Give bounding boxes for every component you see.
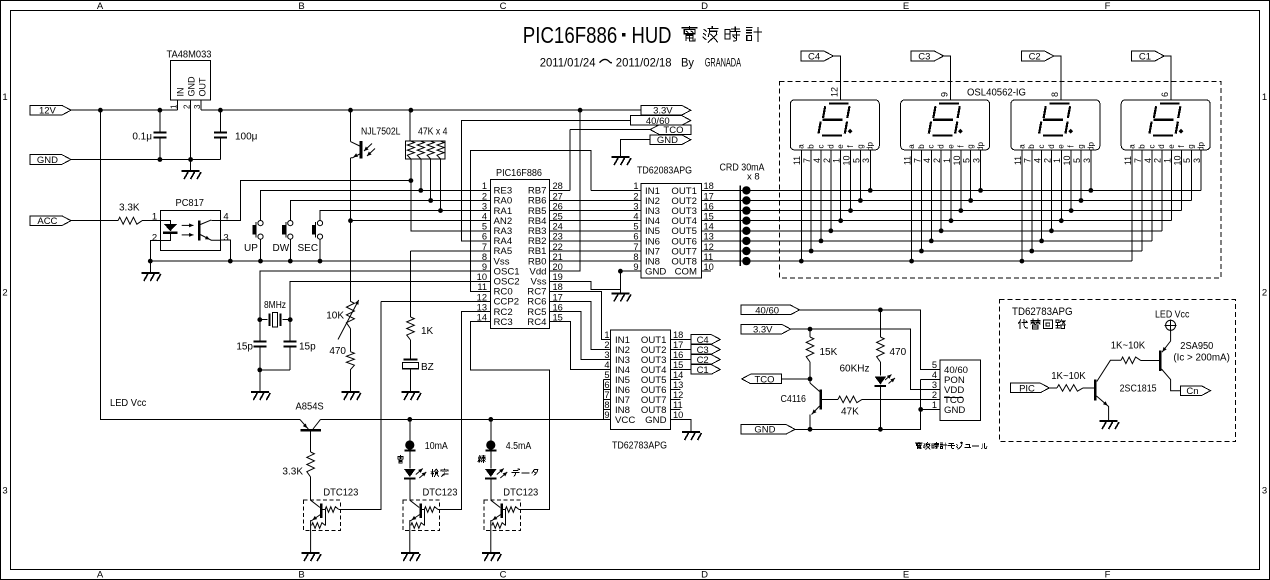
- svg-text:7: 7: [802, 158, 812, 163]
- svg-text:dp: dp: [866, 142, 875, 151]
- svg-text:d: d: [937, 144, 946, 148]
- svg-text:3: 3: [932, 380, 937, 390]
- svg-text:15p: 15p: [236, 342, 253, 353]
- svg-text:18: 18: [673, 330, 683, 340]
- svg-text:13: 13: [477, 302, 487, 312]
- svg-text:e: e: [1057, 144, 1066, 149]
- svg-text:2: 2: [1262, 288, 1267, 299]
- svg-text:dp: dp: [1197, 142, 1206, 151]
- svg-text:C: C: [500, 570, 507, 580]
- svg-text:26: 26: [553, 201, 563, 211]
- svg-text:e: e: [836, 144, 845, 149]
- svg-text:6: 6: [482, 232, 487, 242]
- svg-text:2011/01/24: 2011/01/24: [540, 56, 596, 70]
- svg-text:7: 7: [1133, 158, 1143, 163]
- svg-text:2: 2: [182, 104, 191, 109]
- svg-text:10: 10: [1062, 155, 1072, 165]
- svg-text:C1: C1: [1139, 51, 1151, 62]
- svg-text:DTC123: DTC123: [423, 488, 458, 499]
- svg-text:10: 10: [952, 155, 962, 165]
- svg-text:5: 5: [604, 370, 609, 380]
- svg-text:3: 3: [2, 486, 7, 497]
- svg-text:10: 10: [841, 155, 851, 165]
- svg-text:2: 2: [932, 158, 942, 163]
- svg-text:4: 4: [932, 370, 937, 380]
- svg-text:8: 8: [604, 400, 609, 410]
- svg-text:TCO: TCO: [754, 374, 774, 385]
- svg-text:15K: 15K: [820, 347, 838, 358]
- svg-text:A: A: [97, 570, 104, 580]
- svg-text:BZ: BZ: [421, 362, 434, 373]
- svg-text:6: 6: [1160, 92, 1170, 97]
- svg-text:a: a: [907, 144, 916, 149]
- svg-text:1: 1: [1262, 92, 1267, 103]
- svg-text:DTC123: DTC123: [503, 488, 538, 499]
- svg-text:8: 8: [633, 252, 638, 262]
- svg-text:2SC1815: 2SC1815: [1120, 384, 1157, 395]
- svg-text:b: b: [917, 144, 926, 149]
- svg-text:g: g: [1076, 144, 1085, 148]
- svg-text:E: E: [903, 570, 909, 580]
- svg-text:19: 19: [553, 272, 563, 282]
- svg-text:21: 21: [553, 252, 563, 262]
- svg-text:12: 12: [829, 87, 839, 97]
- svg-text:470: 470: [890, 347, 907, 358]
- svg-text:4: 4: [1033, 158, 1043, 163]
- svg-text:1: 1: [1163, 158, 1173, 163]
- svg-text:5: 5: [1182, 158, 1192, 163]
- svg-text:12V: 12V: [39, 106, 57, 117]
- svg-text:25: 25: [553, 212, 563, 222]
- svg-text:17: 17: [673, 340, 683, 350]
- svg-text:LED Vcc: LED Vcc: [110, 398, 146, 409]
- svg-text:3: 3: [971, 158, 981, 163]
- svg-text:9: 9: [633, 262, 638, 272]
- svg-text:15: 15: [673, 360, 683, 370]
- svg-text:2: 2: [633, 191, 638, 201]
- svg-text:F: F: [1105, 570, 1111, 580]
- svg-text:10K: 10K: [326, 311, 344, 322]
- svg-text:1: 1: [2, 92, 7, 103]
- svg-text:11: 11: [673, 400, 683, 410]
- svg-text:10: 10: [1172, 155, 1182, 165]
- svg-text:12: 12: [673, 390, 683, 400]
- svg-text:C3: C3: [918, 51, 930, 62]
- svg-text:27: 27: [553, 191, 563, 201]
- svg-text:3.3K: 3.3K: [282, 467, 303, 478]
- svg-text:a: a: [1128, 144, 1137, 149]
- svg-text:GND: GND: [37, 155, 58, 166]
- svg-text:0.1μ: 0.1μ: [132, 132, 152, 143]
- svg-text:7: 7: [604, 390, 609, 400]
- svg-text:100μ: 100μ: [235, 132, 258, 143]
- svg-text:TD62083APG: TD62083APG: [637, 166, 692, 177]
- svg-text:a: a: [1017, 144, 1026, 149]
- svg-text:6: 6: [604, 380, 609, 390]
- svg-text:g: g: [966, 144, 975, 148]
- svg-text:5: 5: [962, 158, 972, 163]
- svg-text:23: 23: [553, 232, 563, 242]
- svg-text:5: 5: [932, 360, 937, 370]
- svg-text:a: a: [797, 144, 806, 149]
- svg-text:2: 2: [1042, 158, 1052, 163]
- svg-text:D: D: [701, 570, 708, 580]
- svg-text:DW: DW: [273, 243, 290, 254]
- svg-text:2: 2: [152, 233, 157, 244]
- svg-text:2011/02/18: 2011/02/18: [616, 56, 672, 70]
- svg-text:15: 15: [704, 212, 714, 222]
- svg-text:PIC16F886: PIC16F886: [496, 168, 542, 179]
- svg-text:3.3V: 3.3V: [753, 325, 773, 336]
- svg-text:3: 3: [861, 158, 871, 163]
- svg-text:VCC: VCC: [615, 415, 635, 426]
- svg-text:SEC: SEC: [298, 243, 319, 254]
- svg-text:15: 15: [553, 313, 563, 323]
- svg-text:(Ic > 200mA): (Ic > 200mA): [1173, 353, 1230, 364]
- svg-text:1: 1: [942, 158, 952, 163]
- svg-text:18: 18: [704, 181, 714, 191]
- svg-text:By: By: [681, 56, 694, 70]
- svg-text:3: 3: [604, 350, 609, 360]
- svg-text:3: 3: [1192, 158, 1202, 163]
- svg-text:3: 3: [1262, 486, 1267, 497]
- svg-text:DTC123: DTC123: [323, 488, 358, 499]
- svg-text:GRANADA: GRANADA: [705, 56, 741, 70]
- svg-text:TA48M033: TA48M033: [167, 50, 212, 61]
- svg-text:4: 4: [812, 158, 822, 163]
- svg-text:3: 3: [1082, 158, 1092, 163]
- svg-text:28: 28: [553, 181, 563, 191]
- svg-text:E: E: [903, 1, 909, 12]
- svg-text:3: 3: [633, 201, 638, 211]
- svg-text:47K: 47K: [841, 407, 859, 418]
- svg-text:dp: dp: [976, 142, 985, 151]
- svg-text:13: 13: [704, 232, 714, 242]
- svg-text:C4116: C4116: [781, 394, 807, 405]
- svg-text:8: 8: [1050, 92, 1060, 97]
- svg-text:5: 5: [482, 222, 487, 232]
- svg-text:1: 1: [633, 181, 638, 191]
- svg-text:2: 2: [604, 340, 609, 350]
- svg-text:A: A: [97, 1, 104, 12]
- svg-text:3: 3: [193, 104, 202, 109]
- svg-text:11: 11: [903, 156, 913, 165]
- svg-text:B: B: [298, 570, 304, 580]
- svg-text:F: F: [1105, 1, 1111, 12]
- svg-text:2SA950: 2SA950: [1180, 341, 1213, 352]
- svg-text:d: d: [826, 144, 835, 148]
- svg-text:1: 1: [169, 104, 178, 109]
- svg-text:x 8: x 8: [747, 172, 760, 183]
- svg-text:d: d: [1047, 144, 1056, 148]
- svg-text:20: 20: [553, 262, 563, 272]
- svg-text:2: 2: [822, 158, 832, 163]
- svg-text:A854S: A854S: [296, 402, 325, 413]
- svg-text:GND: GND: [645, 267, 666, 278]
- svg-text:D: D: [701, 1, 708, 12]
- svg-text:16: 16: [673, 350, 683, 360]
- svg-text:11: 11: [1013, 156, 1023, 165]
- svg-text:2: 2: [482, 191, 487, 201]
- svg-text:2: 2: [2, 288, 7, 299]
- svg-text:HUD: HUD: [632, 22, 672, 48]
- svg-text:IN: IN: [176, 88, 186, 97]
- svg-text:17: 17: [704, 191, 714, 201]
- svg-text:9: 9: [604, 410, 609, 420]
- svg-text:10: 10: [673, 410, 683, 420]
- svg-text:22: 22: [553, 242, 563, 252]
- svg-text:4: 4: [633, 212, 638, 222]
- svg-text:GND: GND: [944, 405, 965, 416]
- svg-text:TD62783APG: TD62783APG: [612, 441, 667, 452]
- svg-text:3.3K: 3.3K: [119, 203, 140, 214]
- svg-text:7: 7: [633, 242, 638, 252]
- svg-text:GND: GND: [754, 425, 775, 436]
- svg-text:15p: 15p: [299, 342, 316, 353]
- svg-text:14: 14: [477, 313, 487, 323]
- svg-text:5: 5: [633, 222, 638, 232]
- svg-text:PIC16F886: PIC16F886: [523, 22, 618, 48]
- svg-text:TD62783APG: TD62783APG: [1012, 306, 1073, 318]
- svg-text:GND: GND: [645, 415, 666, 426]
- svg-text:OUT: OUT: [198, 77, 208, 97]
- svg-text:C2: C2: [1029, 51, 1041, 62]
- svg-text:e: e: [946, 144, 955, 149]
- svg-text:b: b: [807, 144, 816, 149]
- svg-text:2: 2: [1153, 158, 1163, 163]
- svg-text:b: b: [1027, 144, 1036, 149]
- svg-text:16: 16: [553, 302, 563, 312]
- svg-text:c: c: [927, 145, 936, 149]
- svg-text:g: g: [856, 144, 865, 148]
- svg-text:13: 13: [673, 380, 683, 390]
- svg-text:10: 10: [704, 262, 714, 272]
- svg-text:4: 4: [604, 360, 609, 370]
- svg-text:dp: dp: [1086, 142, 1095, 151]
- svg-text:24: 24: [553, 222, 563, 232]
- svg-text:C1: C1: [697, 365, 709, 376]
- svg-text:c: c: [816, 145, 825, 149]
- svg-text:8MHz: 8MHz: [264, 300, 286, 311]
- svg-text:1: 1: [932, 400, 937, 410]
- svg-text:14: 14: [704, 222, 714, 232]
- svg-text:g: g: [1187, 144, 1196, 148]
- svg-text:4: 4: [482, 212, 487, 222]
- svg-text:ACC: ACC: [37, 216, 57, 227]
- svg-text:1: 1: [1052, 158, 1062, 163]
- svg-text:12: 12: [477, 292, 487, 302]
- svg-text:10mA: 10mA: [425, 441, 448, 452]
- svg-text:NJL7502L: NJL7502L: [361, 127, 401, 138]
- svg-text:3: 3: [223, 233, 228, 244]
- svg-text:1K: 1K: [421, 326, 434, 337]
- svg-text:4: 4: [1143, 158, 1153, 163]
- svg-text:1: 1: [604, 330, 609, 340]
- svg-text:47K x 4: 47K x 4: [418, 127, 448, 138]
- svg-text:11: 11: [477, 282, 487, 292]
- svg-text:GND: GND: [657, 135, 678, 146]
- svg-text:7: 7: [482, 242, 487, 252]
- svg-text:C4: C4: [808, 51, 820, 62]
- svg-text:470: 470: [329, 346, 346, 357]
- svg-text:4: 4: [922, 158, 932, 163]
- svg-text:OSL40562-IG: OSL40562-IG: [967, 88, 1026, 99]
- svg-text:17: 17: [553, 292, 563, 302]
- svg-text:6: 6: [633, 232, 638, 242]
- svg-text:RC3: RC3: [494, 317, 513, 328]
- svg-text:7: 7: [912, 158, 922, 163]
- svg-text:60KHz: 60KHz: [839, 364, 869, 375]
- svg-text:COM: COM: [675, 267, 697, 278]
- svg-text:3: 3: [482, 201, 487, 211]
- svg-text:d: d: [1157, 144, 1166, 148]
- svg-text:7: 7: [1023, 158, 1033, 163]
- svg-text:1K~10K: 1K~10K: [1051, 371, 1086, 382]
- svg-text:Cn: Cn: [1186, 386, 1198, 397]
- svg-text:PC817: PC817: [176, 198, 205, 209]
- svg-text:1: 1: [832, 158, 842, 163]
- svg-text:GND: GND: [187, 76, 197, 97]
- svg-text:PIC: PIC: [1019, 383, 1035, 394]
- svg-text:5: 5: [1072, 158, 1082, 163]
- svg-text:4.5mA: 4.5mA: [506, 441, 532, 452]
- svg-text:B: B: [298, 1, 304, 12]
- svg-text:5: 5: [851, 158, 861, 163]
- svg-text:UP: UP: [244, 243, 258, 254]
- svg-text:LED Vcc: LED Vcc: [1155, 310, 1189, 321]
- svg-text:14: 14: [673, 370, 683, 380]
- svg-text:9: 9: [482, 262, 487, 272]
- svg-text:11: 11: [704, 252, 714, 262]
- svg-text:c: c: [1147, 145, 1156, 149]
- svg-text:12: 12: [704, 242, 714, 252]
- svg-text:RC4: RC4: [527, 317, 547, 328]
- svg-text:b: b: [1137, 144, 1146, 149]
- svg-text:c: c: [1037, 145, 1046, 149]
- svg-text:40/60: 40/60: [755, 305, 779, 316]
- svg-text:18: 18: [553, 282, 563, 292]
- svg-text:11: 11: [1123, 156, 1133, 165]
- svg-text:8: 8: [482, 252, 487, 262]
- svg-text:11: 11: [792, 156, 802, 165]
- svg-text:9: 9: [940, 92, 950, 97]
- svg-text:C: C: [500, 1, 507, 12]
- svg-text:e: e: [1167, 144, 1176, 149]
- svg-text:1: 1: [482, 181, 487, 191]
- svg-text:2: 2: [932, 390, 937, 400]
- svg-text:10: 10: [477, 272, 487, 282]
- svg-text:16: 16: [704, 201, 714, 211]
- svg-text:1: 1: [152, 212, 157, 223]
- svg-text:1K~10K: 1K~10K: [1111, 341, 1146, 352]
